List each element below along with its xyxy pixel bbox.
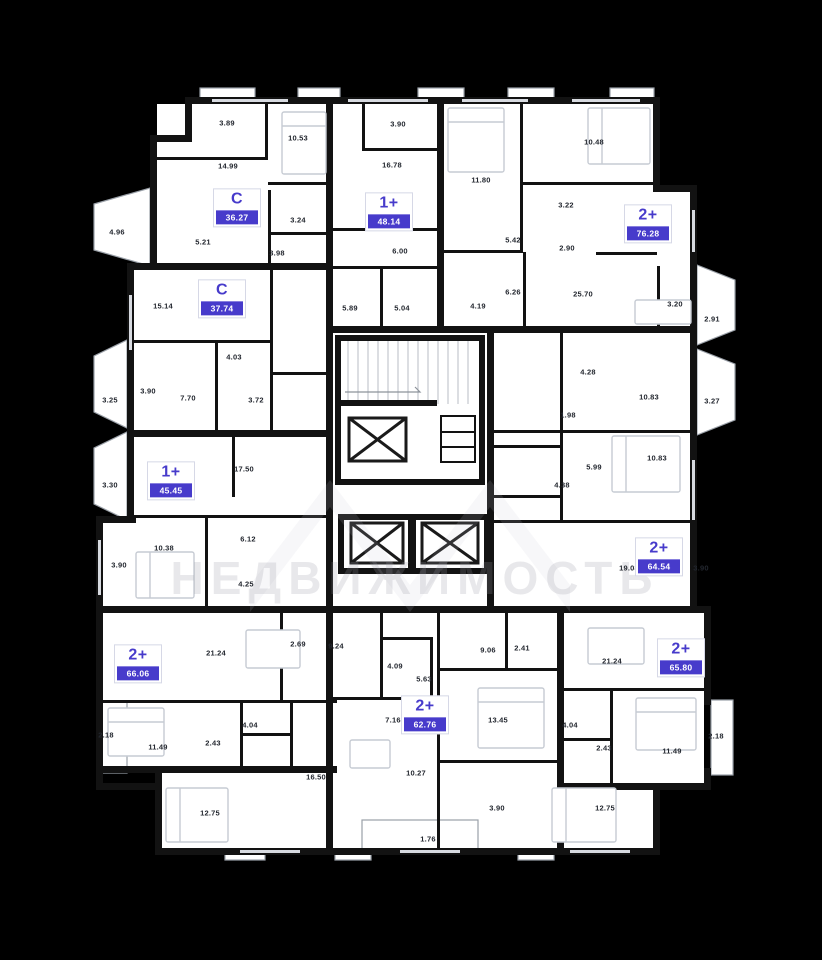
apartment-area: 65.80 (660, 660, 702, 675)
apartment-badge[interactable]: 2+66.06 (114, 644, 162, 683)
apartment-area: 76.28 (627, 226, 669, 241)
apartment-type: 2+ (660, 641, 702, 658)
apartment-area: 66.06 (117, 666, 159, 681)
apartment-badge[interactable]: 2+64.54 (635, 537, 683, 576)
apartment-type: С (201, 282, 243, 299)
apartment-badge[interactable]: 1+45.45 (147, 461, 195, 500)
floor-plan-canvas: НЕДВИЖИМОСТЬ 3.8910.5314.995.213.243.984… (0, 0, 822, 960)
apartment-badge[interactable]: С36.27 (213, 188, 261, 227)
apartment-badge[interactable]: 2+65.80 (657, 638, 705, 677)
apartment-area: 45.45 (150, 483, 192, 498)
apartment-type: 1+ (150, 464, 192, 481)
apartment-type: 2+ (404, 698, 446, 715)
watermark-text: НЕДВИЖИМОСТЬ (171, 551, 660, 605)
apartment-type: С (216, 191, 258, 208)
apartment-area: 48.14 (368, 214, 410, 229)
apartment-area: 37.74 (201, 301, 243, 316)
floor-plan-drawing (0, 0, 822, 960)
elevator-shafts (349, 418, 406, 461)
apartment-type: 2+ (627, 207, 669, 224)
apartment-area: 64.54 (638, 559, 680, 574)
apartment-type: 2+ (117, 647, 159, 664)
apartment-type: 2+ (638, 540, 680, 557)
apartment-area: 62.76 (404, 717, 446, 732)
apartment-badge[interactable]: 2+76.28 (624, 204, 672, 243)
apartment-badge[interactable]: 1+48.14 (365, 192, 413, 231)
apartment-area: 36.27 (216, 210, 258, 225)
apartment-badge[interactable]: 2+62.76 (401, 695, 449, 734)
apartment-type: 1+ (368, 195, 410, 212)
apartment-badge[interactable]: С37.74 (198, 279, 246, 318)
